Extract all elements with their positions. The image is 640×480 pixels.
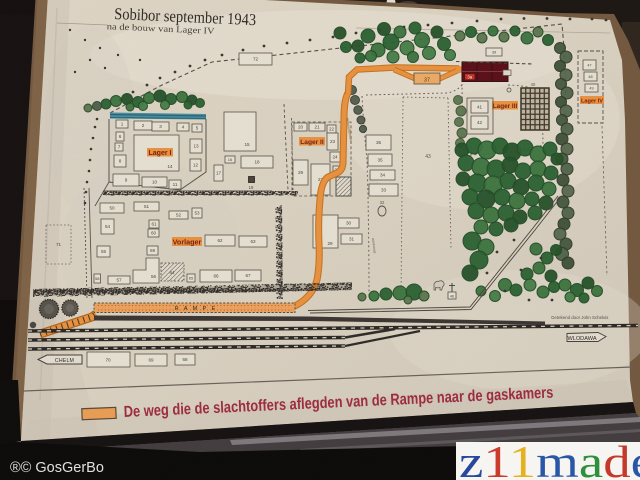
svg-text:z11made: z11made <box>459 436 640 480</box>
